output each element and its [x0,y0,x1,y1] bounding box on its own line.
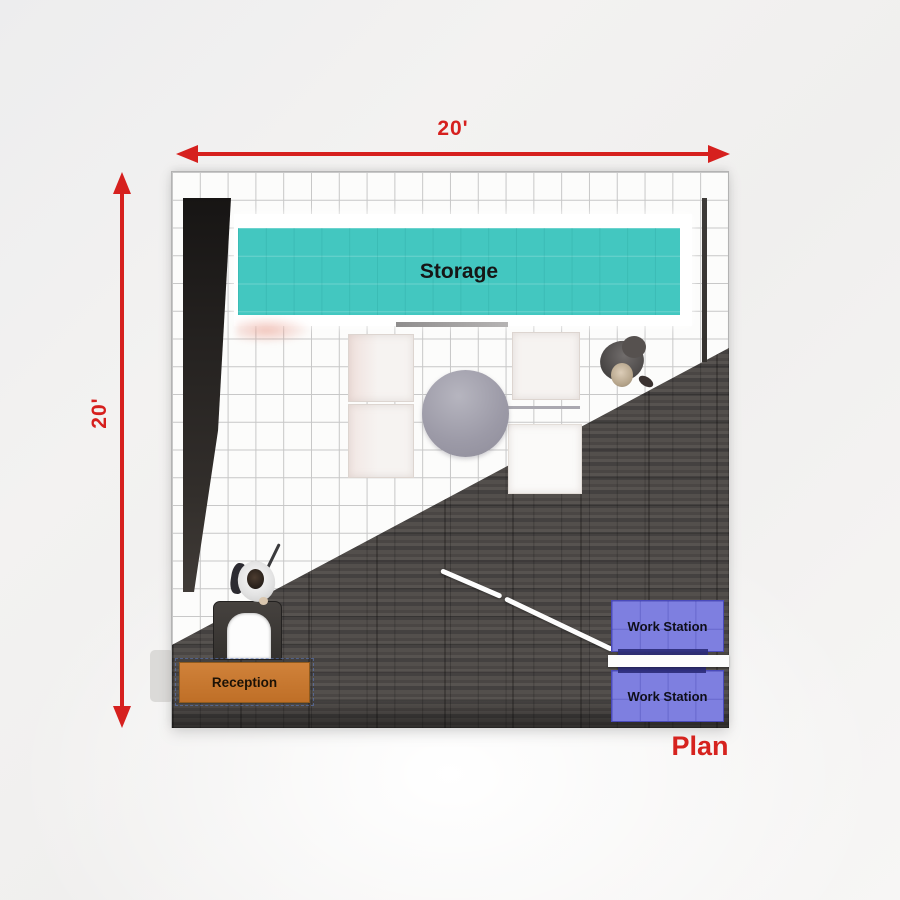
arrowhead-down-icon [113,706,131,728]
round-table [422,370,509,457]
arrowhead-up-icon [113,172,131,194]
arrow-line [189,152,717,156]
storage-area: Storage [238,228,680,315]
dimension-height-arrow [113,172,131,728]
person-visitor-figure [598,336,652,398]
plan-caption: Plan [655,731,745,762]
person-receptionist-figure [228,540,284,610]
dimension-width-label: 20' [176,117,730,141]
person-head [611,363,633,387]
reception-desk: Reception [179,662,310,703]
desk-edge-strip [618,666,706,673]
floor-reflection [236,316,312,344]
lounge-chair [348,404,414,478]
person-shoulder [622,336,646,358]
lounge-chair [348,334,414,402]
shelf-bar [396,322,508,327]
workstation-divider-counter [608,655,729,667]
arch-opening [227,613,271,659]
person-shoe [637,373,655,389]
arrowhead-right-icon [708,145,730,163]
dimension-width-arrow [176,145,730,163]
left-wall [183,198,231,592]
person-hand [259,597,268,605]
work-station-top: Work Station [611,600,724,652]
floor-plan: Storage Work Station Work Station Recept… [172,172,728,727]
lounge-chair [508,424,582,494]
person-head [247,569,264,589]
floor-shadow-blob [150,650,174,702]
work-station-bottom: Work Station [611,670,724,722]
arrow-line [120,185,124,715]
arrowhead-left-icon [176,145,198,163]
lounge-chair [512,332,580,400]
right-wall-strip [702,198,707,362]
table-edge-line [508,406,580,409]
